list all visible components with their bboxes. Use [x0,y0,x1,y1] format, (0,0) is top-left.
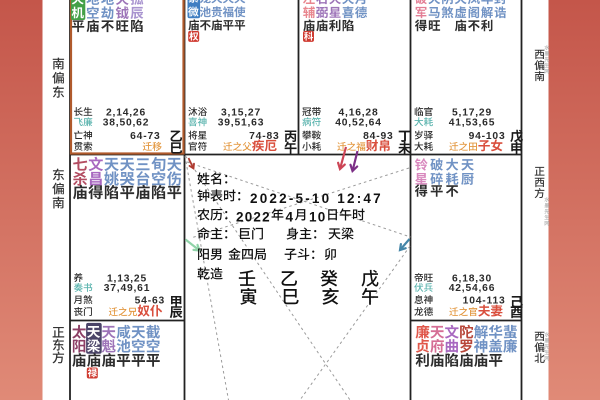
svg-text:42,54,66: 42,54,66 [449,283,495,294]
svg-text:40,52,64: 40,52,64 [335,118,381,129]
svg-text:94-103: 94-103 [469,131,506,142]
svg-text:104-113: 104-113 [463,295,506,306]
svg-text:4: 4 [286,209,294,224]
svg-text:2022-5-10 12:47: 2022-5-10 12:47 [250,191,383,206]
svg-text:37,49,61: 37,49,61 [104,283,150,294]
svg-text:64-73: 64-73 [130,131,160,142]
svg-text:54-63: 54-63 [135,295,165,306]
svg-text:39,51,63: 39,51,63 [218,118,264,129]
svg-text:38,50,62: 38,50,62 [103,118,149,129]
svg-text:2022: 2022 [236,209,271,224]
svg-text:10: 10 [309,209,326,224]
svg-text:41,53,65: 41,53,65 [449,118,495,129]
